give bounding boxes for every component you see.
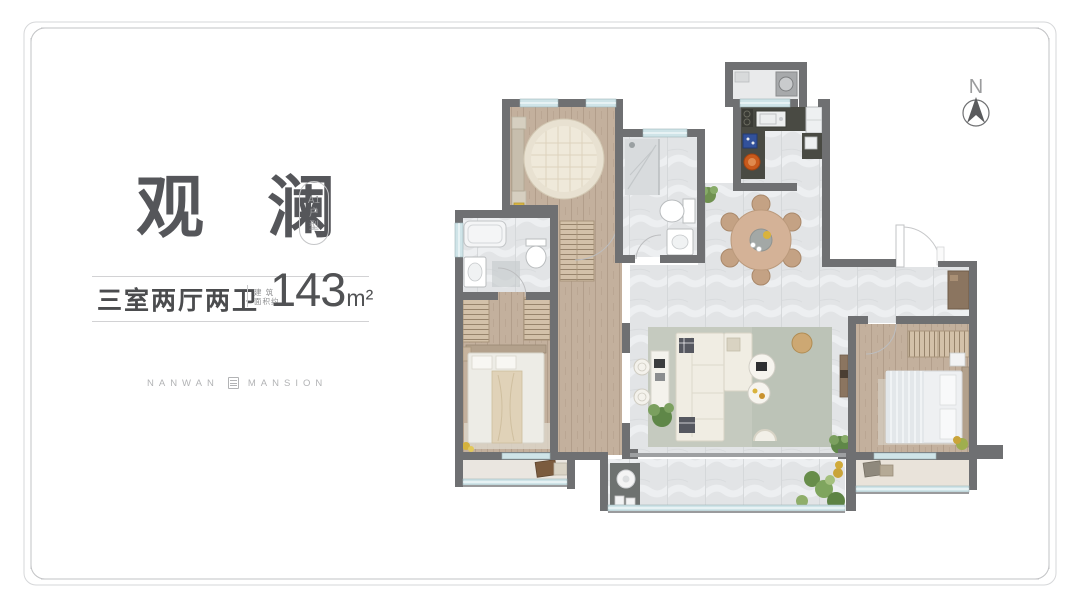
balcony-door-track bbox=[630, 453, 846, 457]
brand-word-left: NANWAN bbox=[147, 378, 219, 389]
compass-label: N bbox=[969, 76, 983, 98]
living-room-furniture bbox=[634, 327, 849, 454]
brand-logotype: NANWAN MANSION bbox=[147, 377, 327, 389]
brand-word-right: MANSION bbox=[248, 378, 327, 389]
bedroom-b-furniture bbox=[462, 345, 550, 452]
spec-divider bbox=[247, 285, 248, 307]
floor-plan: N bbox=[440, 55, 1020, 535]
unit-type-badge: A1 户 型 bbox=[299, 181, 329, 245]
unit-type-model: A1 bbox=[308, 195, 320, 206]
area-figure: 143 m² bbox=[270, 266, 373, 313]
unit-type-char-1: 户 bbox=[309, 208, 319, 219]
layout-spec: 三室两厅两卫 bbox=[97, 281, 259, 317]
poster-page: { "header": { "title": "观 澜", "tag": { "… bbox=[0, 0, 1080, 608]
area-value: 143 bbox=[270, 266, 345, 313]
compass: N bbox=[963, 76, 989, 126]
divider-rule-bottom bbox=[92, 321, 369, 322]
north-arrow-icon bbox=[967, 97, 985, 123]
unit-type-char-2: 型 bbox=[309, 221, 319, 232]
brand-seal-icon bbox=[228, 377, 239, 389]
area-unit: m² bbox=[346, 285, 373, 312]
